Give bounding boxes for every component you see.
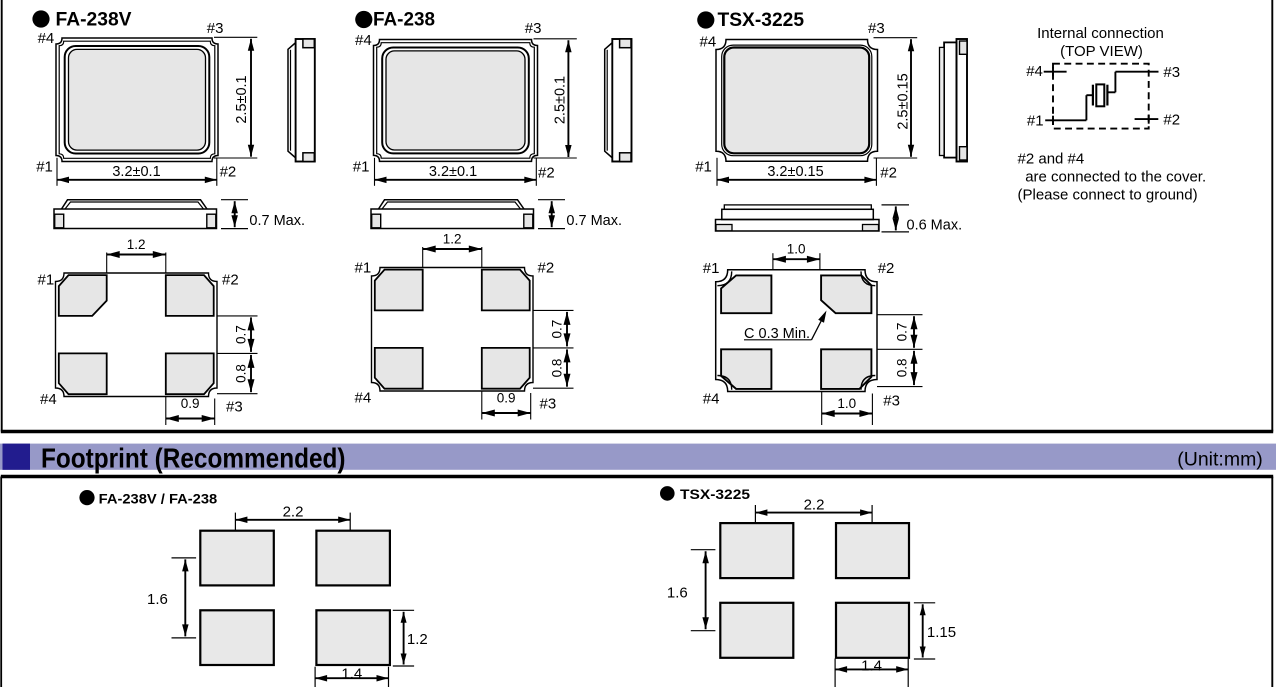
- svg-text:#3: #3: [540, 396, 557, 413]
- svg-text:0.6 Max.: 0.6 Max.: [907, 217, 963, 233]
- svg-text:#4: #4: [1026, 63, 1043, 80]
- svg-text:2.2: 2.2: [283, 504, 304, 521]
- svg-text:#4: #4: [700, 34, 717, 51]
- svg-text:3.2±0.1: 3.2±0.1: [429, 164, 477, 180]
- svg-text:1.6: 1.6: [667, 585, 688, 602]
- svg-text:#3: #3: [883, 393, 900, 410]
- svg-text:#4: #4: [355, 32, 372, 49]
- svg-text:#4: #4: [40, 391, 57, 408]
- svg-text:TSX-3225: TSX-3225: [680, 486, 750, 502]
- svg-text:0.8: 0.8: [550, 359, 565, 378]
- svg-text:FA-238V: FA-238V: [56, 10, 132, 31]
- svg-text:#2: #2: [1163, 111, 1180, 128]
- svg-text:#4: #4: [355, 390, 372, 407]
- svg-text:0.7 Max.: 0.7 Max.: [566, 213, 622, 229]
- svg-text:Internal connection: Internal connection: [1037, 25, 1164, 42]
- svg-text:#2: #2: [222, 272, 239, 289]
- svg-text:#1: #1: [355, 259, 372, 276]
- svg-text:1.6: 1.6: [147, 591, 168, 608]
- svg-text:(Please connect to ground): (Please connect to ground): [1018, 186, 1198, 203]
- svg-text:(Unit:mm): (Unit:mm): [1177, 450, 1263, 471]
- svg-text:#2: #2: [880, 164, 897, 181]
- svg-text:1.2: 1.2: [407, 631, 428, 648]
- svg-text:2.5±0.1: 2.5±0.1: [552, 76, 568, 124]
- svg-text:TSX-3225: TSX-3225: [718, 10, 805, 31]
- svg-text:0.8: 0.8: [895, 359, 910, 378]
- svg-text:2.5±0.1: 2.5±0.1: [234, 75, 250, 123]
- svg-text:#3: #3: [226, 399, 243, 416]
- svg-text:#1: #1: [703, 260, 720, 277]
- svg-text:1.15: 1.15: [927, 624, 956, 641]
- svg-text:0.9: 0.9: [497, 391, 516, 406]
- svg-text:0.9: 0.9: [181, 396, 200, 411]
- svg-text:#1: #1: [1027, 112, 1044, 129]
- svg-text:#2: #2: [878, 260, 895, 277]
- svg-text:3.2±0.1: 3.2±0.1: [112, 164, 160, 180]
- svg-text:FA-238V / FA-238: FA-238V / FA-238: [99, 490, 218, 506]
- svg-text:#2: #2: [220, 164, 237, 181]
- svg-text:1.0: 1.0: [787, 242, 806, 257]
- svg-text:#1: #1: [695, 158, 712, 175]
- svg-text:1.0: 1.0: [837, 396, 856, 411]
- svg-text:1.4: 1.4: [861, 657, 882, 674]
- svg-text:#4: #4: [703, 391, 720, 408]
- svg-text:0.8: 0.8: [234, 364, 249, 383]
- svg-text:#2 and #4: #2 and #4: [1018, 151, 1085, 168]
- svg-text:1.2: 1.2: [127, 237, 146, 252]
- svg-text:3.2±0.15: 3.2±0.15: [767, 164, 823, 180]
- svg-text:1.2: 1.2: [443, 232, 462, 247]
- svg-text:2.5±0.15: 2.5±0.15: [895, 73, 911, 129]
- svg-text:#3: #3: [207, 20, 224, 37]
- svg-text:Footprint (Recommended): Footprint (Recommended): [41, 442, 346, 473]
- svg-text:0.7 Max.: 0.7 Max.: [249, 213, 305, 229]
- svg-text:0.7: 0.7: [550, 320, 565, 339]
- svg-text:#1: #1: [36, 158, 53, 175]
- svg-text:#2: #2: [538, 259, 555, 276]
- svg-text:(TOP VIEW): (TOP VIEW): [1060, 43, 1143, 60]
- svg-text:0.7: 0.7: [234, 325, 249, 344]
- svg-text:#3: #3: [868, 20, 885, 37]
- svg-text:#1: #1: [353, 158, 370, 175]
- svg-text:are connected to the cover.: are connected to the cover.: [1025, 168, 1206, 185]
- svg-text:#4: #4: [38, 30, 55, 47]
- svg-text:2.2: 2.2: [804, 497, 825, 514]
- svg-text:#2: #2: [538, 164, 555, 181]
- svg-text:0.7: 0.7: [895, 323, 910, 342]
- svg-text:#3: #3: [1163, 64, 1180, 81]
- svg-text:#1: #1: [38, 272, 55, 289]
- svg-text:#3: #3: [525, 20, 542, 37]
- svg-text:FA-238: FA-238: [373, 10, 435, 31]
- svg-text:1.4: 1.4: [341, 666, 362, 683]
